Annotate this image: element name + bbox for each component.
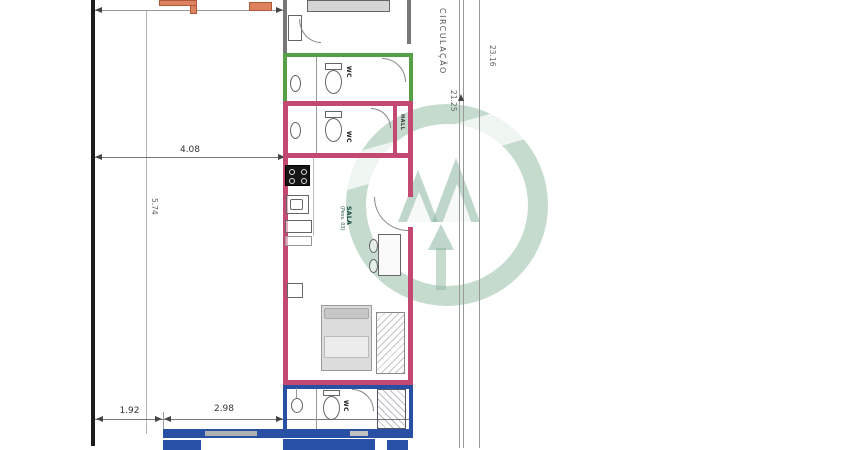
door-arc-top-room	[299, 19, 321, 43]
corridor-line-2	[463, 0, 464, 448]
kitchen-shelf	[285, 220, 312, 233]
kitchen-sink-basin	[290, 199, 303, 210]
counter-edge	[313, 158, 314, 236]
label-wc-pink: WC	[345, 131, 352, 143]
wall-orange-top-b	[190, 5, 197, 14]
wall-orange-top-c	[249, 2, 272, 11]
stove-burner	[289, 178, 295, 184]
wall-gray-infill	[205, 431, 257, 436]
dim-arrow	[96, 416, 103, 422]
label-wc-green: WC	[345, 66, 352, 78]
partition-wc-middle	[316, 106, 317, 153]
wardrobe-icon	[376, 312, 405, 374]
sink-icon	[291, 398, 303, 413]
wall-blue-lower-a	[163, 440, 201, 450]
wall-top-right	[407, 0, 411, 44]
wall-magenta-right-a	[408, 101, 413, 197]
door-arc-sala	[374, 197, 408, 231]
extension-line-vertical	[146, 10, 147, 434]
stove-burner	[289, 169, 295, 175]
dim-arrow	[276, 7, 283, 13]
wall-magenta-mid	[283, 153, 413, 158]
label-wc-blue: WC	[342, 400, 349, 412]
dim-height-left: 5.74	[149, 198, 159, 215]
watermark-mountain-right-cut	[442, 184, 472, 224]
dimension-line-408	[95, 157, 285, 158]
wall-gray-infill	[350, 431, 368, 436]
nightstand-icon	[287, 283, 303, 298]
watermark-arrow-stem	[436, 248, 446, 290]
stove-burner	[301, 178, 307, 184]
corridor-line-3	[479, 0, 480, 448]
dim-bottom-right: 2.98	[163, 404, 285, 414]
label-sala-sub: (Pess. 03)	[338, 206, 345, 231]
property-line-left	[91, 0, 95, 446]
wall-blue-lower-b	[283, 439, 375, 450]
stove-icon	[285, 165, 310, 186]
sink-icon	[290, 75, 301, 92]
dim-arrow	[155, 416, 162, 422]
bed-pillow	[324, 308, 369, 319]
chair-icon	[369, 259, 378, 273]
dim-arrow	[276, 416, 283, 422]
floor-plan-canvas: 4.08 5.74 1.92 2.98 CIRCULAÇÃO 21.25 23.…	[0, 0, 850, 450]
watermark-mountain-right	[432, 158, 480, 222]
watermark-arrow-head	[428, 224, 454, 250]
toilet-tank-icon	[325, 63, 342, 70]
stove-burner	[301, 169, 307, 175]
label-sala-main: SALA	[345, 206, 352, 231]
partition-wc-bottom	[316, 389, 317, 431]
door-arc-wc-middle	[371, 108, 391, 128]
toilet-icon	[325, 70, 342, 94]
shower-icon	[377, 389, 406, 429]
dim-bottom-left: 1.92	[96, 406, 163, 416]
bed-blanket	[324, 336, 369, 358]
label-hall: HALL	[397, 114, 407, 130]
watermark-swoosh	[318, 94, 568, 196]
partition-wc-upper	[316, 57, 317, 101]
sink-icon	[290, 122, 301, 139]
kitchen-shelf	[285, 236, 312, 246]
bed-top	[307, 0, 390, 12]
toilet-tank-icon	[325, 111, 342, 118]
table-icon	[378, 234, 401, 276]
toilet-icon	[323, 396, 340, 420]
label-circulation: CIRCULAÇÃO	[437, 8, 447, 75]
wall-blue-band	[163, 429, 413, 438]
wall-magenta-right-b	[408, 227, 413, 385]
dim-arrow	[95, 7, 102, 13]
dim-right-outer: 23.16	[487, 45, 497, 66]
dim-right-inner: 21.25	[448, 90, 458, 111]
wall-blue-lower-c	[387, 440, 408, 450]
chair-icon	[369, 239, 378, 253]
dim-width-top: 4.08	[95, 145, 285, 155]
label-sala: SALA (Pess. 03)	[338, 206, 352, 231]
dim-arrow	[164, 416, 171, 422]
wall-top-left	[283, 0, 287, 56]
toilet-icon	[325, 118, 342, 142]
corridor-line-1	[459, 0, 460, 448]
dim-arrow	[458, 94, 464, 101]
sink-pipe	[296, 388, 297, 398]
